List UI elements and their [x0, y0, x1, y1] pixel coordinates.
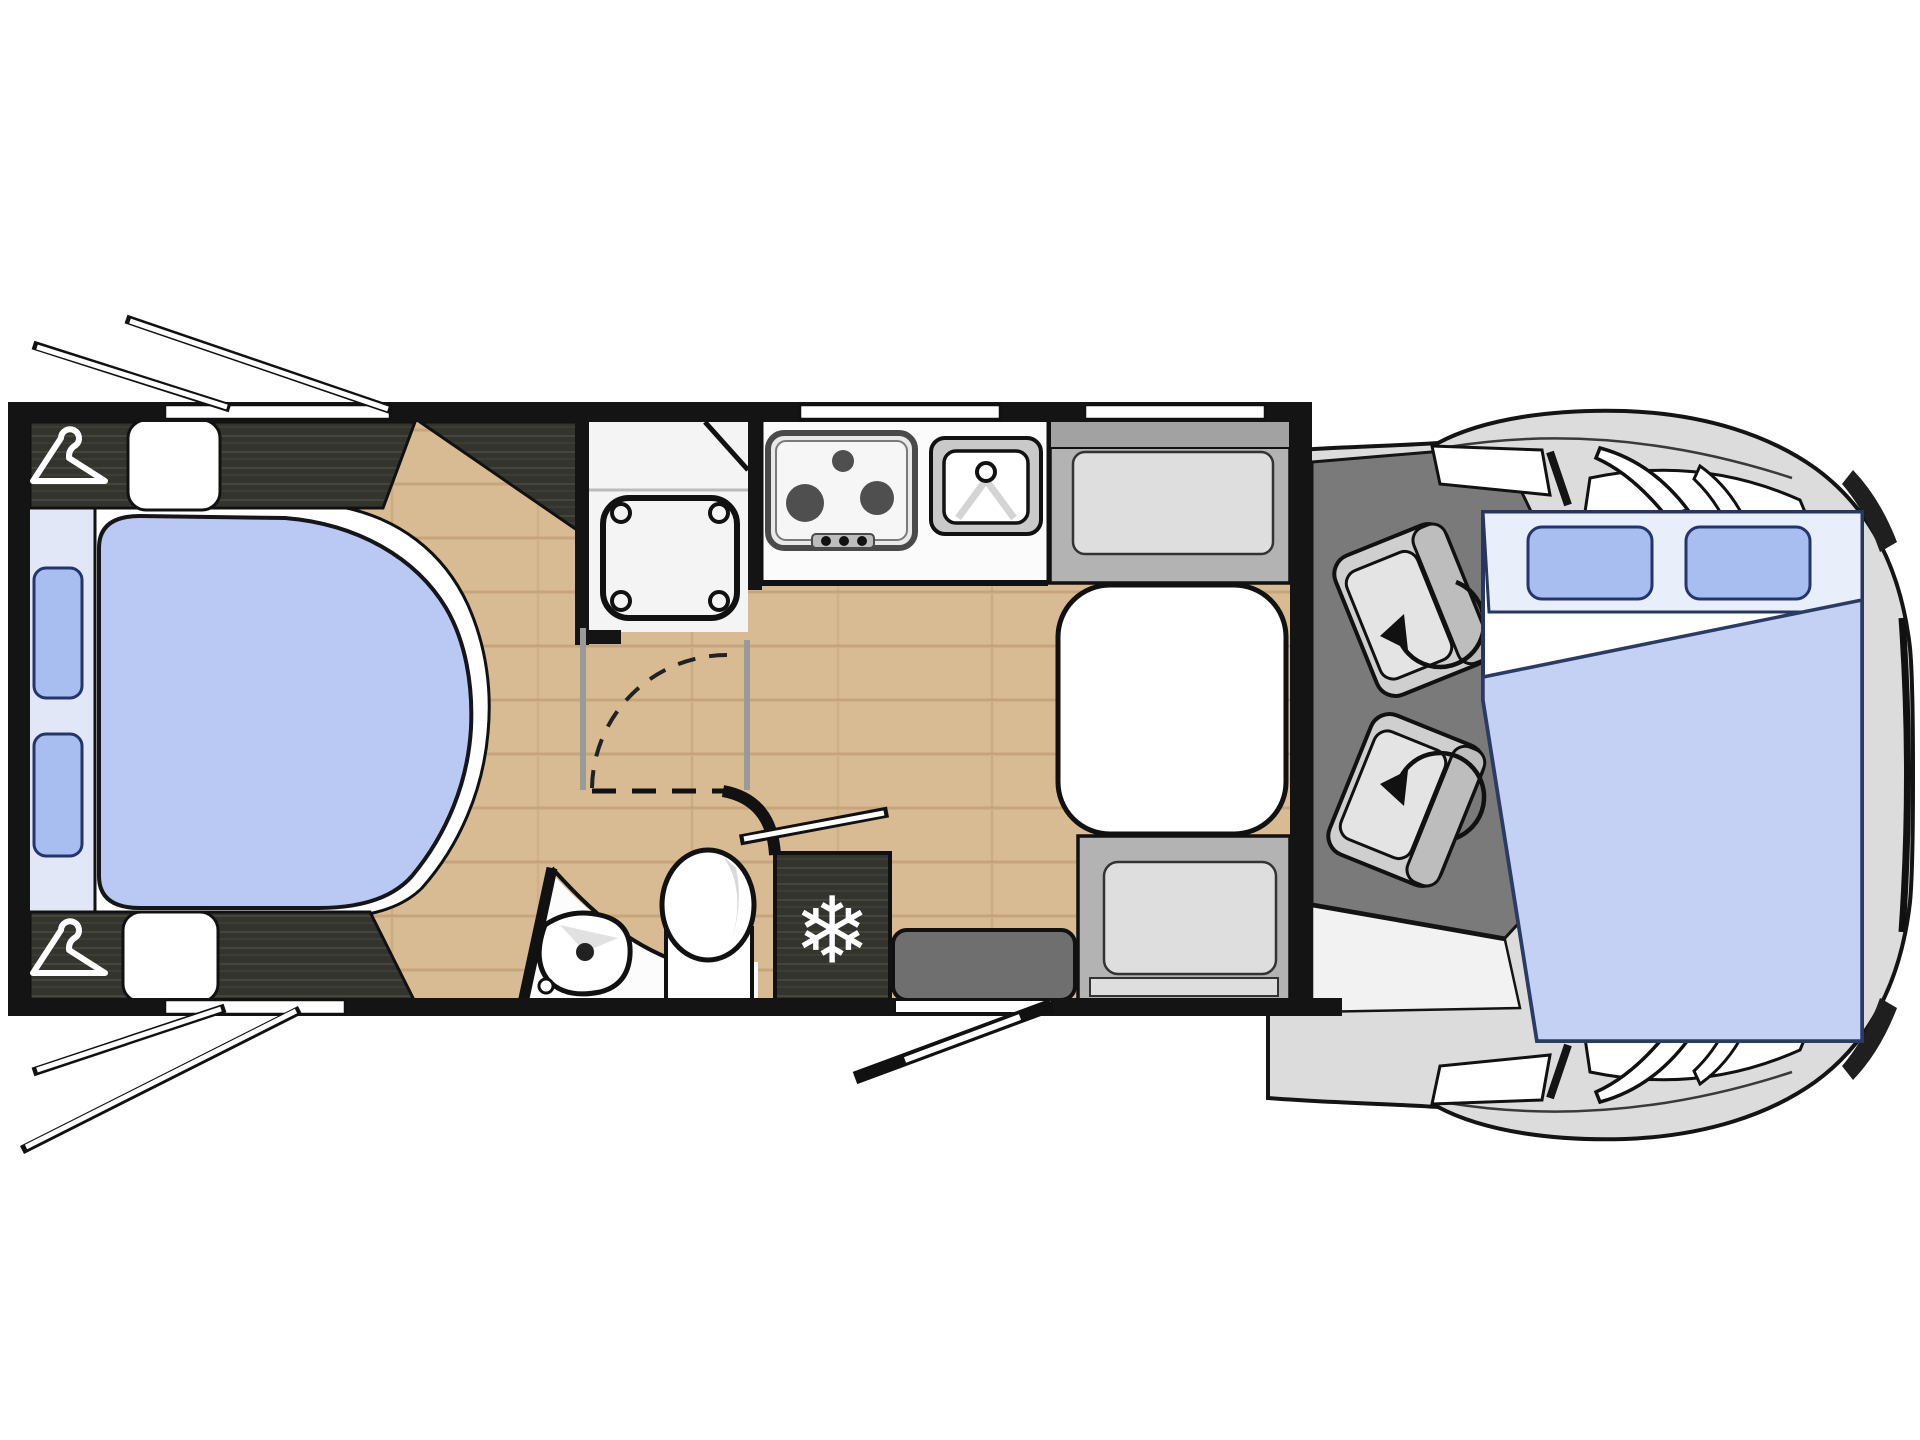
- floorplan-canvas: ❄: [0, 0, 1920, 1440]
- basin-tap-icon: [576, 943, 594, 961]
- door-jamb: [744, 640, 750, 790]
- hob-burner: [860, 481, 894, 515]
- hob-knob: [839, 536, 849, 546]
- sink-tap-icon: [977, 463, 995, 481]
- kitchen: [762, 420, 1048, 583]
- bed-pillow: [128, 420, 220, 510]
- drop-down-bed: [1483, 512, 1862, 1041]
- hob-burner: [832, 450, 854, 472]
- shower-tray-corner: [612, 504, 630, 522]
- shower-tray-corner: [612, 592, 630, 610]
- window-bedroom-top: [165, 405, 390, 419]
- shower-wall-bottom: [589, 630, 621, 644]
- wall-left: [8, 402, 30, 1016]
- headboard-cushion: [34, 568, 82, 698]
- open-window-stay: [33, 345, 230, 408]
- wardrobe-bottom: [30, 912, 415, 1002]
- window-dinette: [1085, 405, 1265, 419]
- window-bedroom-bottom: [165, 1000, 345, 1014]
- bench-seat-rear: [1078, 836, 1290, 1002]
- floorplan-page: ❄: [0, 0, 1920, 1440]
- wardrobe-top: [30, 422, 415, 508]
- entry-step: [893, 930, 1075, 1000]
- drop-bed-duvet: [1483, 600, 1862, 1041]
- dinette-table: [1058, 585, 1286, 834]
- hob-knob: [857, 536, 867, 546]
- basin-drain: [539, 979, 553, 993]
- open-window-stay: [126, 319, 392, 410]
- hob-knob: [821, 536, 831, 546]
- shower-tray-corner: [710, 592, 728, 610]
- hob-burner: [786, 484, 824, 522]
- snowflake-icon: ❄: [793, 878, 870, 985]
- drop-bed-pillow: [1528, 527, 1652, 599]
- headboard-cushion: [34, 734, 82, 856]
- toilet-bowl: [662, 850, 754, 960]
- window-kitchen: [800, 405, 1000, 419]
- drop-bed-pillow: [1686, 527, 1810, 599]
- shower-wall-left: [575, 415, 589, 645]
- door-jamb: [580, 628, 586, 790]
- shower-wall-right: [748, 415, 762, 590]
- wall-right: [1290, 402, 1312, 1016]
- bed-pillow: [123, 912, 218, 1002]
- bench-seat-forward: [1050, 420, 1290, 583]
- shower-tray-corner: [710, 504, 728, 522]
- bed-duvet: [99, 516, 471, 908]
